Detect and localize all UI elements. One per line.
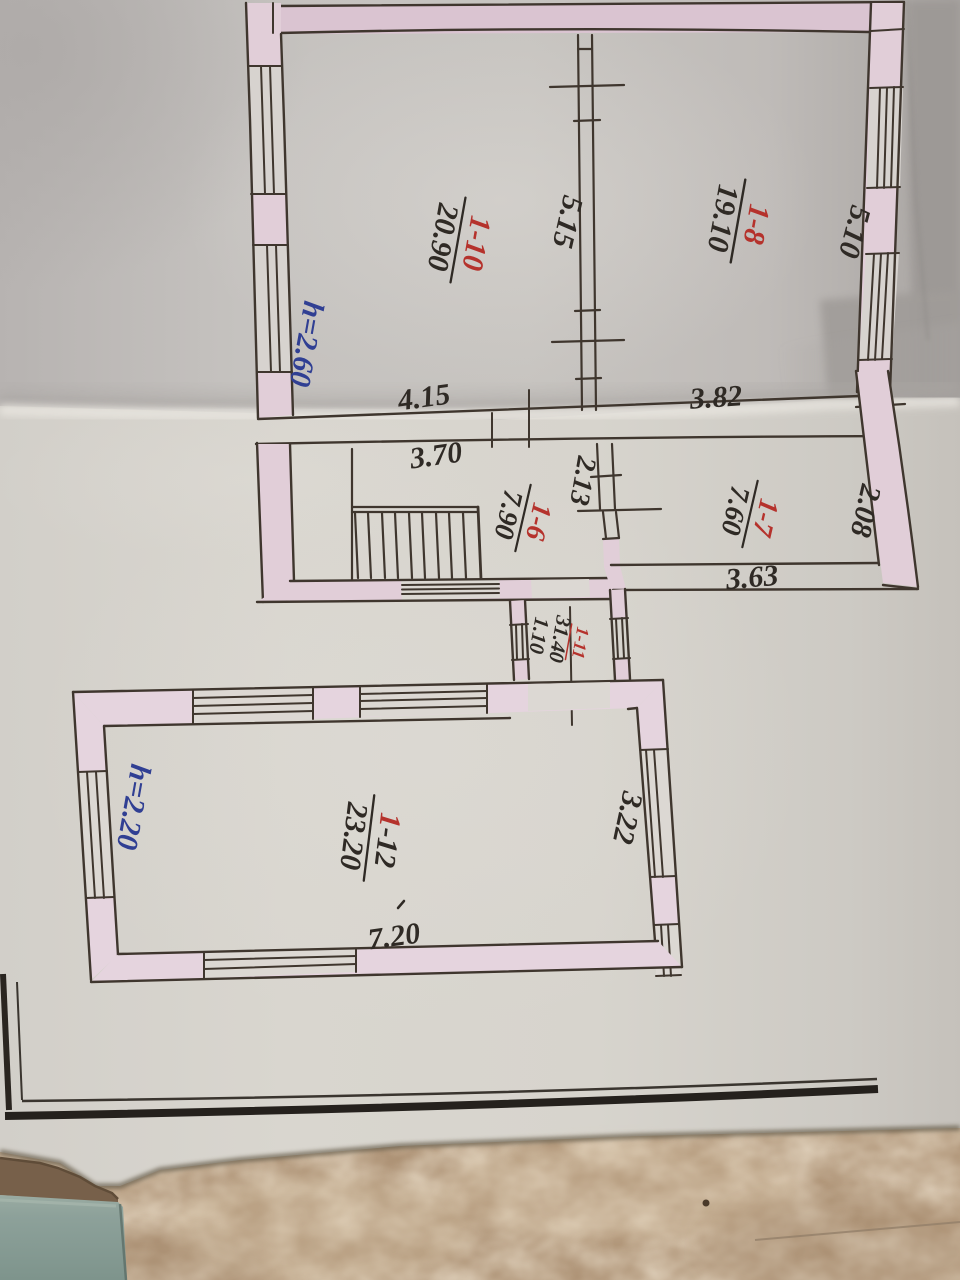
svg-text:1-12: 1-12: [368, 811, 407, 870]
svg-text:3.82: 3.82: [688, 379, 744, 416]
svg-text:3.63: 3.63: [723, 559, 779, 597]
svg-text:1-8: 1-8: [736, 202, 775, 247]
